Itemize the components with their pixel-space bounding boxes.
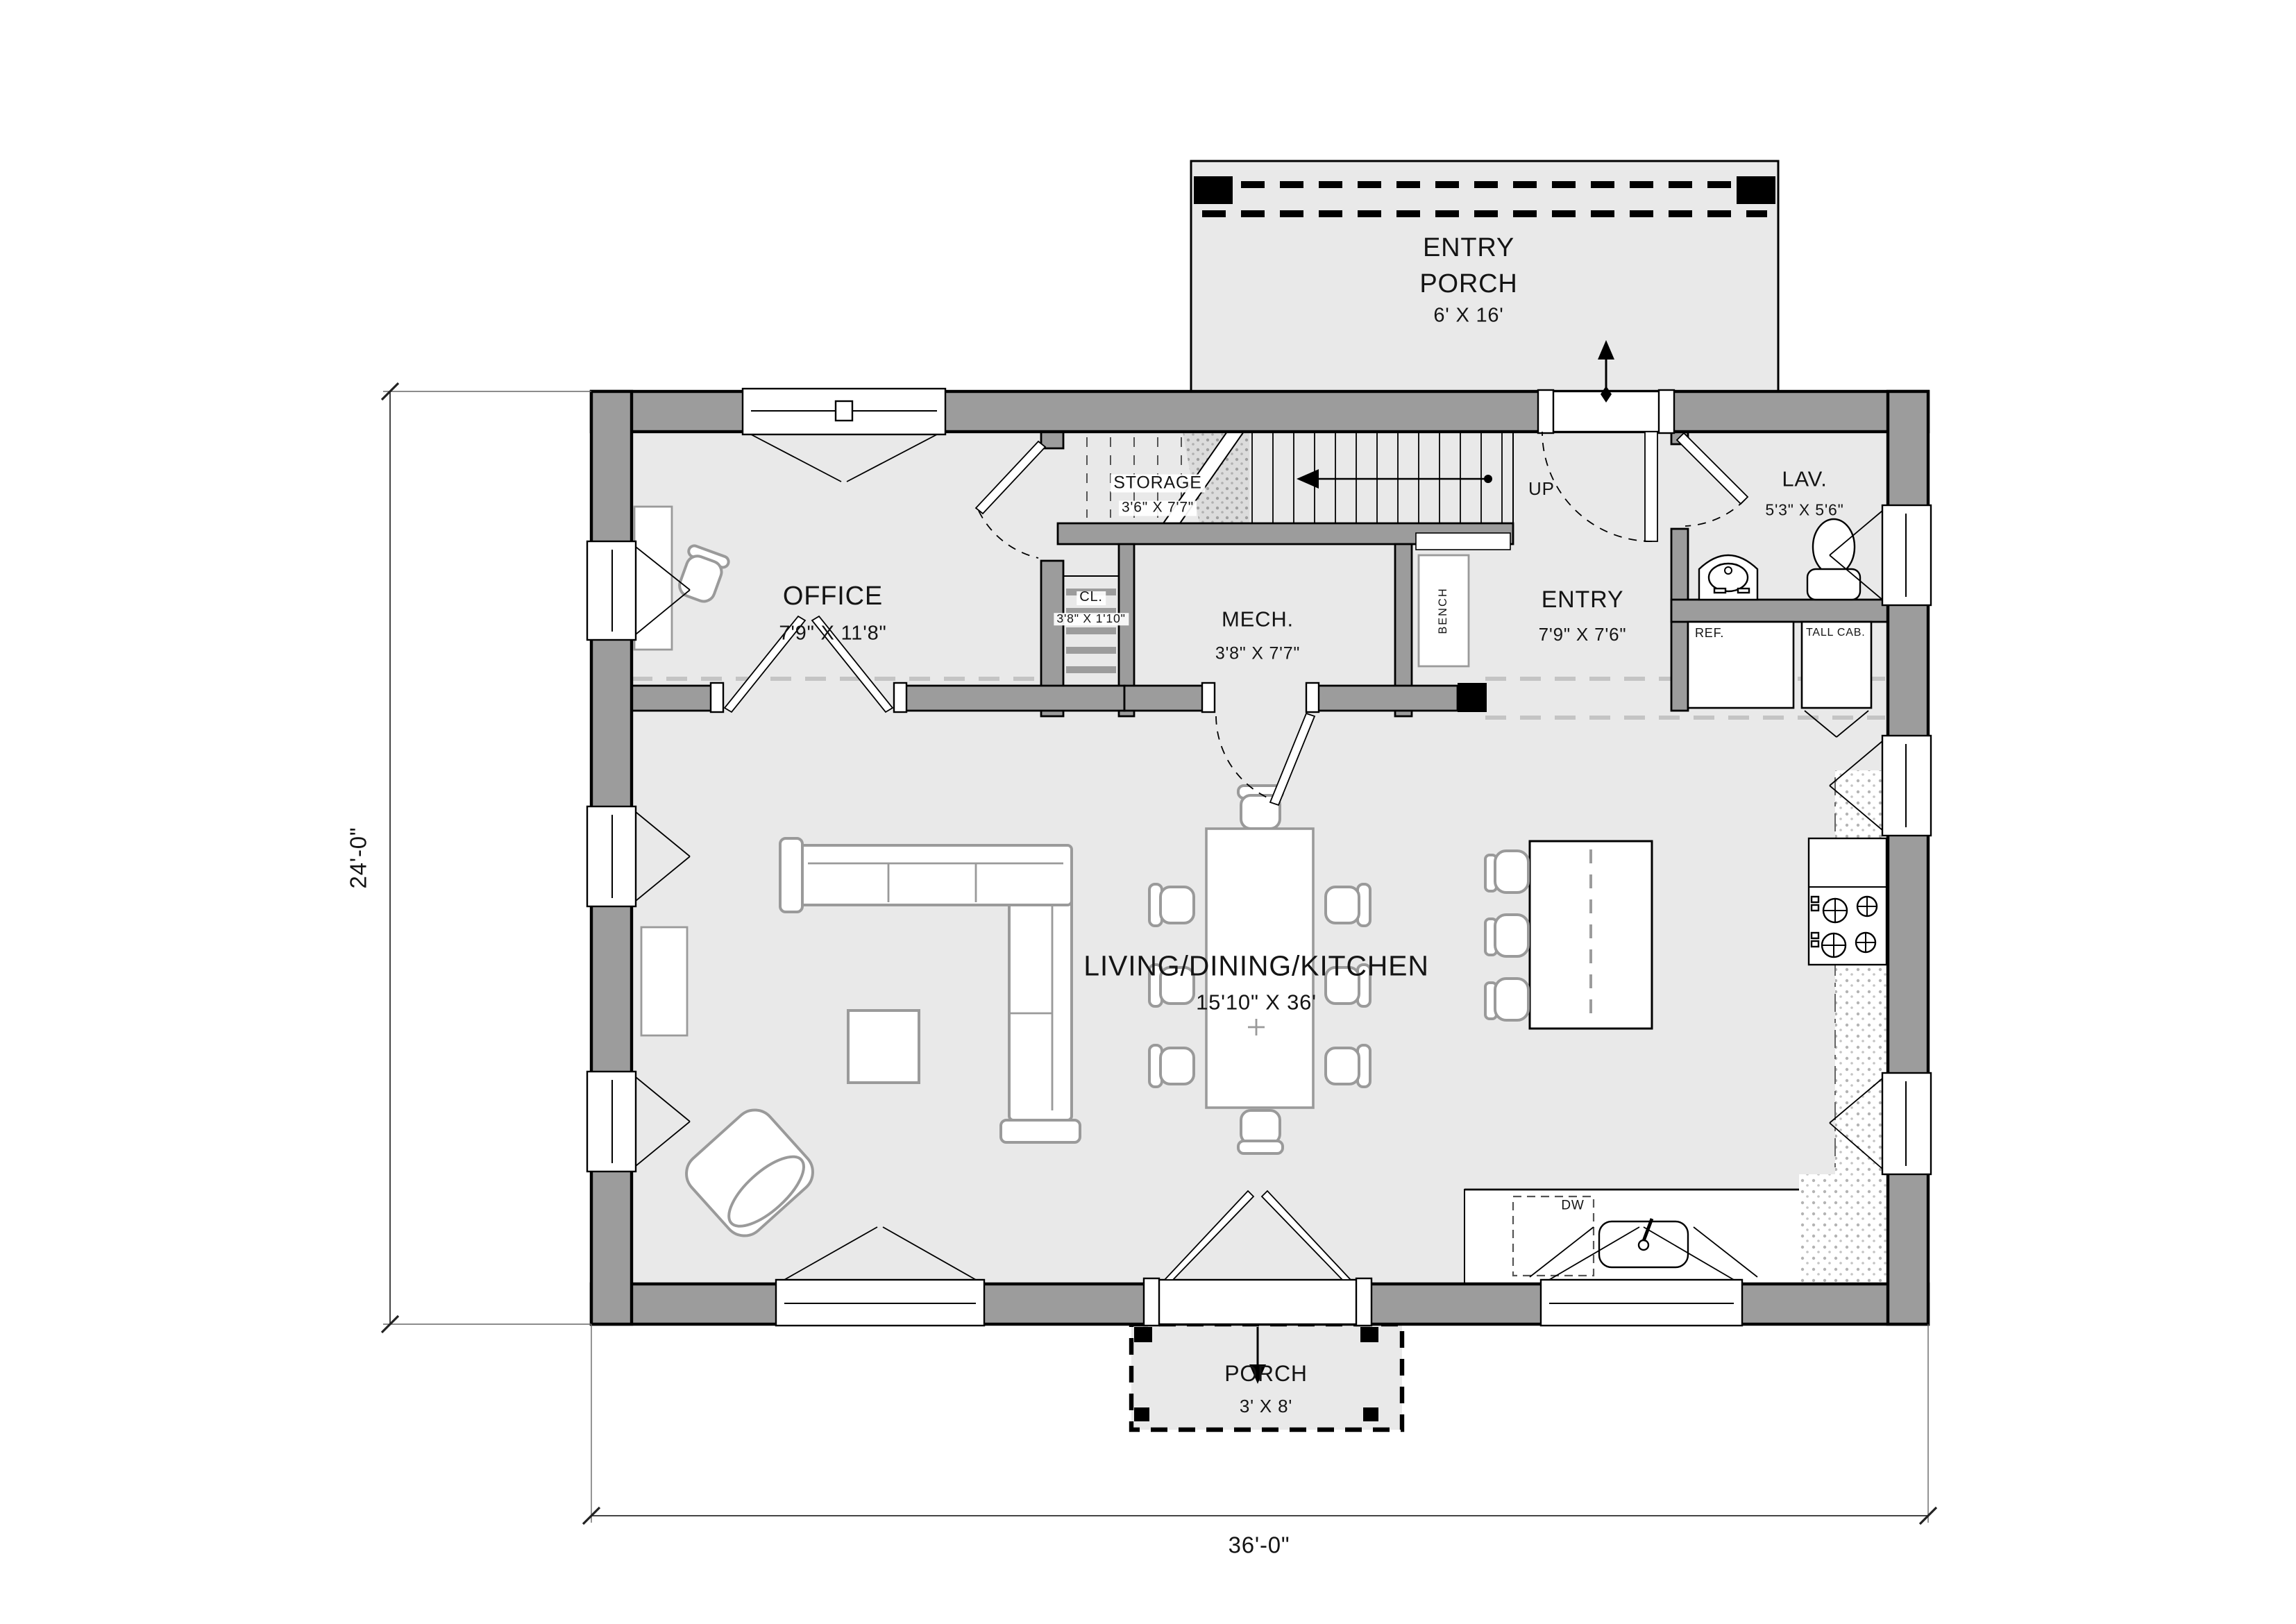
dw-label: DW	[1561, 1200, 1584, 1213]
island-stools	[1485, 851, 1528, 1020]
entry-porch-label-line2: PORCH	[1419, 271, 1517, 298]
porch-post	[1134, 1407, 1149, 1421]
mech-label: MECH.	[1222, 610, 1294, 632]
floor-plan-stage: ENTRY PORCH 6' X 16' OFFICE 7'9" X 11'8"…	[0, 0, 2296, 1624]
lav-sink	[1699, 555, 1757, 600]
width-dimension-text: 36'-0"	[1229, 1535, 1290, 1558]
kitchen-counter-right	[1835, 770, 1888, 1190]
counter-corner-hatch	[1799, 1174, 1888, 1284]
floor-plan-drawing	[0, 0, 2296, 1624]
storage-label: STORAGE	[1111, 475, 1204, 492]
entry-label: ENTRY	[1542, 588, 1624, 611]
porch-dims: 3' X 8'	[1240, 1397, 1292, 1415]
height-dimension-text: 24'-0"	[348, 827, 371, 889]
porch-post	[1194, 176, 1233, 204]
entry-porch-dims: 6' X 16'	[1433, 307, 1503, 327]
up-label: UP	[1528, 480, 1555, 498]
mech-dims: 3'8" X 7'7"	[1215, 645, 1300, 663]
porch-post	[1134, 1327, 1152, 1342]
kitchen-island	[1530, 841, 1652, 1029]
entry-dims: 7'9" X 7'6"	[1539, 625, 1627, 643]
lav-label: LAV.	[1782, 470, 1827, 491]
structural-post	[1458, 683, 1487, 712]
office-dims: 7'9" X 11'8"	[779, 625, 886, 645]
closet-dims: 3'8" X 1'10"	[1054, 613, 1128, 625]
lav-dims: 5'3" X 5'6"	[1765, 505, 1843, 521]
coffee-table	[848, 1010, 919, 1083]
porch-post	[1737, 176, 1775, 204]
ref-label: REF.	[1695, 627, 1724, 640]
closet-label: CL.	[1077, 591, 1106, 605]
entry-porch-label-line1: ENTRY	[1423, 235, 1514, 262]
porch-post	[1363, 1407, 1378, 1421]
office-label: OFFICE	[783, 584, 883, 610]
media-console	[641, 927, 687, 1035]
living-label: LIVING/DINING/KITCHEN	[1083, 954, 1428, 982]
lav-vanity	[1671, 600, 1888, 622]
range	[1809, 838, 1886, 965]
living-dims: 15'10" X 36'	[1196, 993, 1317, 1015]
porch-label: PORCH	[1224, 1364, 1308, 1387]
porch-post	[1360, 1327, 1378, 1342]
bench-label: BENCH	[1438, 587, 1449, 634]
tall-cab-label: TALL CAB.	[1806, 627, 1865, 638]
storage-dims: 3'6" X 7'7"	[1119, 501, 1197, 516]
